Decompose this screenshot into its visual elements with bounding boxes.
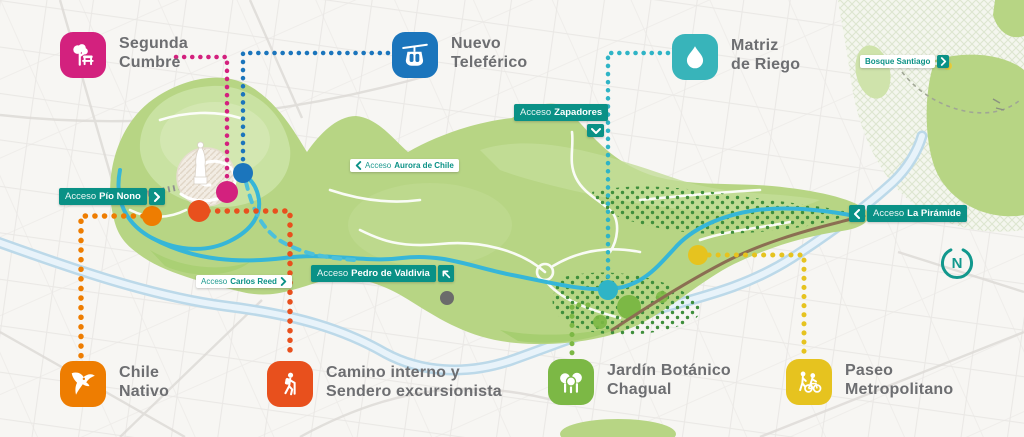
legend-paseo-metropolitano: PaseoMetropolitano <box>786 359 953 405</box>
cable-car-icon <box>392 32 438 78</box>
badge-bosque-santiago[interactable]: Bosque Santiago <box>860 55 949 68</box>
legend-nuevo-teleferico: NuevoTeleférico <box>392 32 527 78</box>
badge-acceso-pio-nono[interactable]: AccesoPío Nono <box>59 188 165 205</box>
arrow-up-left-icon[interactable] <box>438 265 454 282</box>
legend-label: PaseoMetropolitano <box>845 359 953 400</box>
compass-label: N <box>952 255 963 272</box>
tree-bench-icon <box>60 32 106 78</box>
badge-acceso-la-piramide[interactable]: AccesoLa Pirámide <box>849 205 967 222</box>
marker-paseo-metropolitano[interactable] <box>688 245 708 265</box>
chevron-right-icon <box>280 277 287 286</box>
marker-segunda-cumbre[interactable] <box>216 181 238 203</box>
chevron-right-icon[interactable] <box>149 188 165 205</box>
legend-camino-interno: Camino interno ySendero excursionista <box>267 361 502 407</box>
chevron-right-icon[interactable] <box>937 55 949 68</box>
legend-label: Jardín BotánicoChagual <box>607 359 731 400</box>
marker-nuevo-teleferico[interactable] <box>233 163 253 183</box>
legend-label: ChileNativo <box>119 361 169 402</box>
chevron-left-icon[interactable] <box>849 205 865 222</box>
legend-matriz-de-riego: Matrizde Riego <box>672 34 800 80</box>
condor-icon <box>60 361 106 407</box>
marker-chile-nativo[interactable] <box>142 206 162 226</box>
badge-acceso-aurora-de-chile[interactable]: AccesoAurora de Chile <box>350 159 459 172</box>
water-drop-icon <box>672 34 718 80</box>
park-map: SegundaCumbre NuevoTeleférico Matrizde R… <box>0 0 1024 437</box>
trees-icon <box>548 359 594 405</box>
legend-label: NuevoTeleférico <box>451 32 527 73</box>
compass-north: N <box>938 243 976 281</box>
pedestrian-cyclist-icon <box>786 359 832 405</box>
legend-chile-nativo: ChileNativo <box>60 361 169 407</box>
marker-matriz-de-riego[interactable] <box>598 280 618 300</box>
chevron-down-icon[interactable] <box>587 124 604 137</box>
marker-gray-point[interactable] <box>440 291 454 305</box>
badge-acceso-carlos-reed[interactable]: AccesoCarlos Reed <box>196 275 292 288</box>
badge-acceso-pedro-de-valdivia[interactable]: AccesoPedro de Valdivia <box>311 265 454 282</box>
legend-jardin-botanico: Jardín BotánicoChagual <box>548 359 731 405</box>
legend-label: Matrizde Riego <box>731 34 800 75</box>
badge-acceso-zapadores[interactable]: AccesoZapadores <box>514 104 608 137</box>
legend-label: SegundaCumbre <box>119 32 188 73</box>
chevron-left-icon <box>355 161 362 170</box>
marker-camino-interno[interactable] <box>188 200 210 222</box>
hiker-icon <box>267 361 313 407</box>
legend-segunda-cumbre: SegundaCumbre <box>60 32 188 78</box>
legend-label: Camino interno ySendero excursionista <box>326 361 502 402</box>
